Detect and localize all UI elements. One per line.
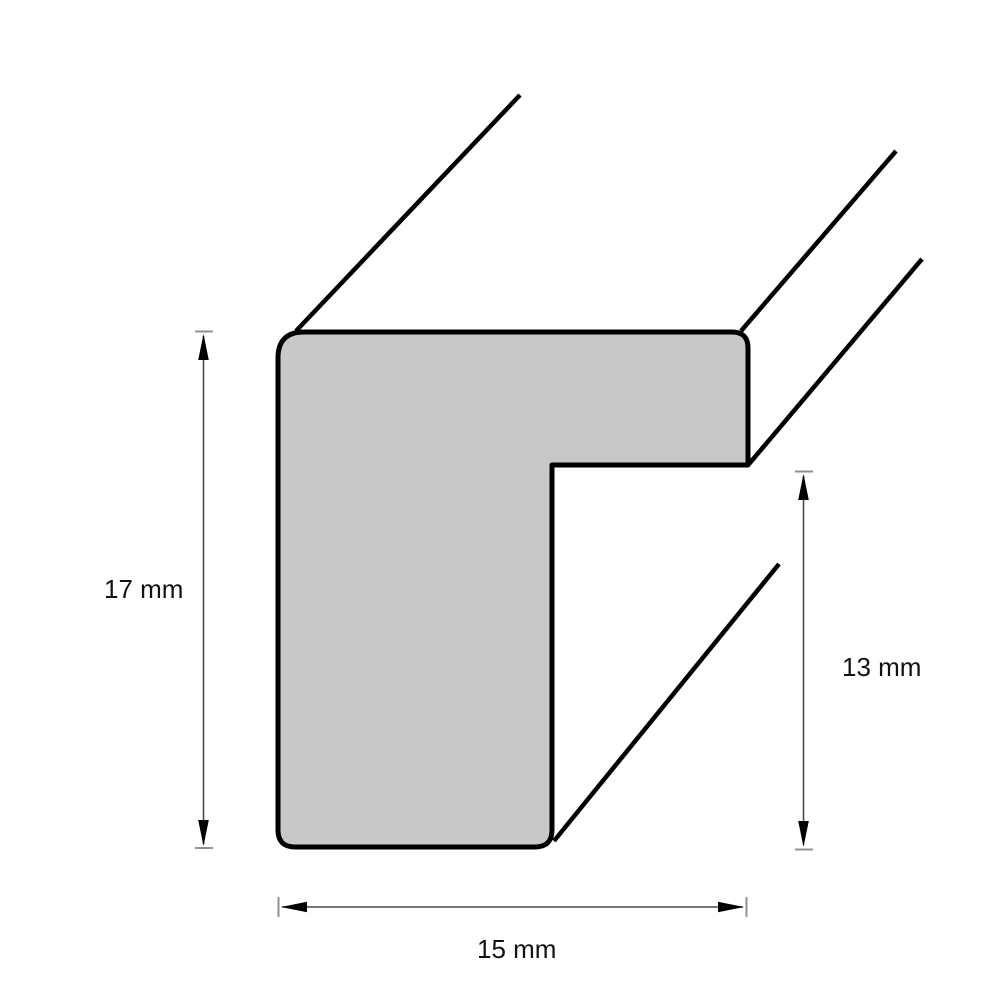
rabbet-dimension-label: 13 mm	[842, 652, 921, 682]
arrow-left-icon	[281, 902, 307, 913]
moulding-cross-section-diagram: 17 mm 13 mm 15 mm	[0, 0, 1000, 1000]
projection-line-top-left	[296, 95, 520, 331]
arrow-up-icon	[798, 474, 809, 500]
dimension-rabbet: 13 mm	[795, 472, 921, 850]
arrow-up-icon	[198, 334, 209, 360]
projection-line-bottom-right	[554, 564, 779, 841]
diagram-canvas: 17 mm 13 mm 15 mm	[0, 0, 1000, 1000]
arrow-down-icon	[798, 821, 809, 847]
width-dimension-label: 15 mm	[477, 934, 556, 964]
dimension-width: 15 mm	[279, 897, 747, 964]
height-dimension-label: 17 mm	[104, 574, 183, 604]
dimension-height: 17 mm	[104, 332, 213, 849]
moulding-profile-shape	[278, 332, 748, 847]
projection-line-top-right	[741, 151, 896, 331]
arrow-down-icon	[198, 820, 209, 846]
arrow-right-icon	[718, 902, 744, 913]
